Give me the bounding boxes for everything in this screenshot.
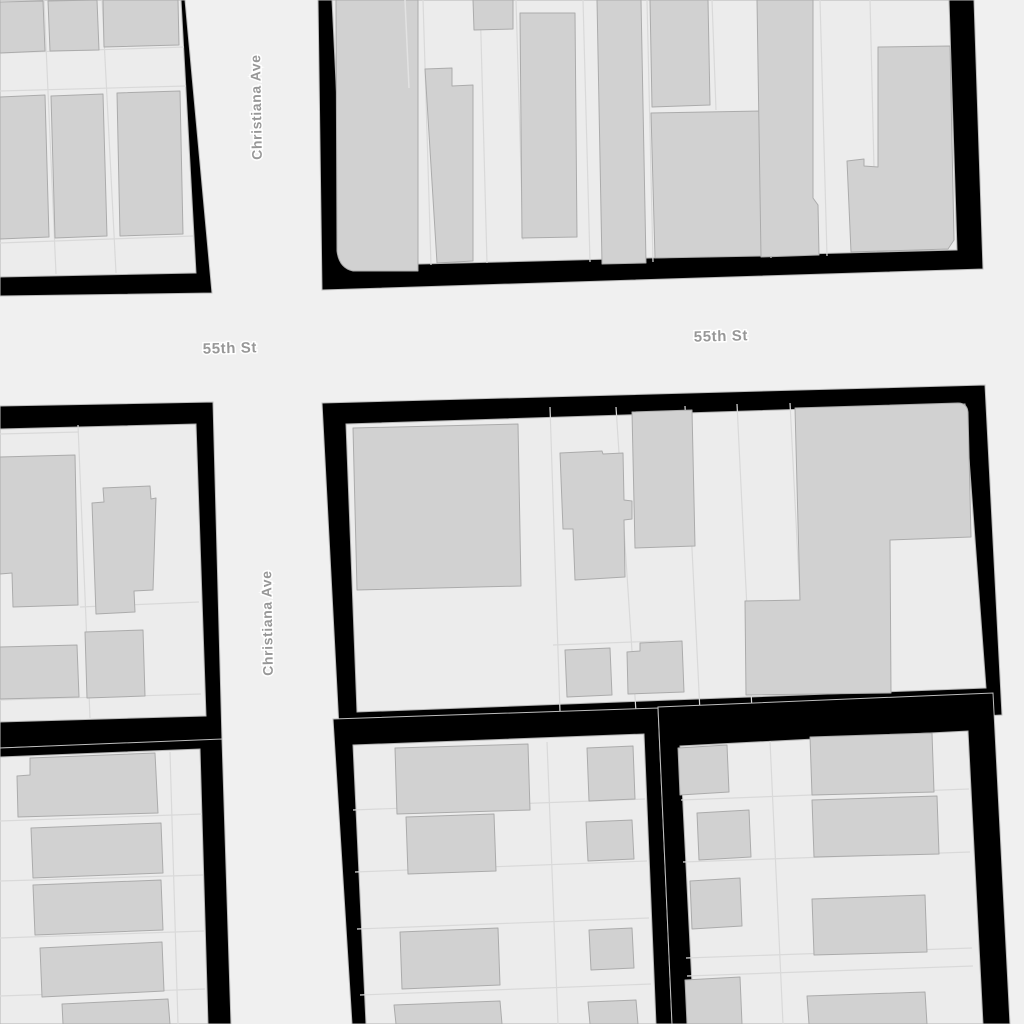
- building-footprint: [589, 928, 634, 970]
- building-footprint: [406, 814, 496, 874]
- building-footprint: [757, 0, 819, 257]
- map-canvas[interactable]: 55th St 55th St Christiana Ave Christian…: [0, 0, 1024, 1024]
- building-footprint: [807, 992, 927, 1024]
- building-footprint: [632, 410, 695, 548]
- building-footprint: [587, 746, 635, 801]
- street-label-christiana-ave: Christiana Ave: [258, 570, 276, 676]
- building-footprint: [33, 880, 163, 935]
- building-footprint: [812, 895, 927, 955]
- street-label-55th-st: 55th St: [203, 339, 258, 357]
- city-block-bottom-left: [0, 739, 231, 1024]
- building-footprint: [697, 810, 751, 860]
- building-footprint: [17, 753, 158, 817]
- building-footprint: [31, 823, 163, 878]
- building-footprint: [685, 977, 742, 1024]
- building-footprint: [0, 645, 79, 699]
- building-footprint: [565, 648, 612, 697]
- building-footprint: [812, 796, 939, 857]
- building-footprint: [336, 0, 418, 271]
- building-footprint: [810, 733, 934, 795]
- building-footprint: [103, 0, 179, 47]
- building-footprint: [0, 95, 49, 239]
- building-footprint: [395, 744, 530, 814]
- building-footprint: [650, 0, 710, 107]
- building-footprint: [0, 1, 45, 53]
- street-label-55th-st: 55th St: [694, 327, 749, 345]
- building-footprint: [473, 0, 513, 30]
- city-block-top-center: [318, 0, 983, 290]
- building-footprint: [588, 1000, 638, 1024]
- building-footprint: [394, 1001, 502, 1024]
- building-footprint: [678, 745, 729, 795]
- building-footprint: [400, 928, 500, 989]
- building-footprint: [40, 942, 164, 997]
- building-footprint: [597, 0, 646, 264]
- map-view[interactable]: 55th St 55th St Christiana Ave Christian…: [0, 0, 1024, 1024]
- city-block-bottom-right: [658, 693, 1010, 1024]
- building-footprint: [690, 878, 742, 929]
- building-footprint: [51, 94, 107, 238]
- building-footprint: [586, 820, 634, 861]
- building-footprint: [353, 424, 521, 590]
- city-block-middle-left: [0, 402, 222, 748]
- building-footprint: [651, 111, 764, 258]
- buildings: [0, 0, 183, 239]
- building-footprint: [520, 13, 577, 238]
- building-footprint: [85, 630, 145, 698]
- building-footprint: [117, 91, 183, 236]
- building-footprint: [62, 999, 170, 1024]
- city-block-top-left: [0, 0, 212, 296]
- building-footprint: [48, 0, 99, 51]
- city-block-bottom-center: [333, 708, 672, 1024]
- street-label-christiana-ave: Christiana Ave: [247, 54, 265, 160]
- city-block-middle-center: [322, 385, 1002, 747]
